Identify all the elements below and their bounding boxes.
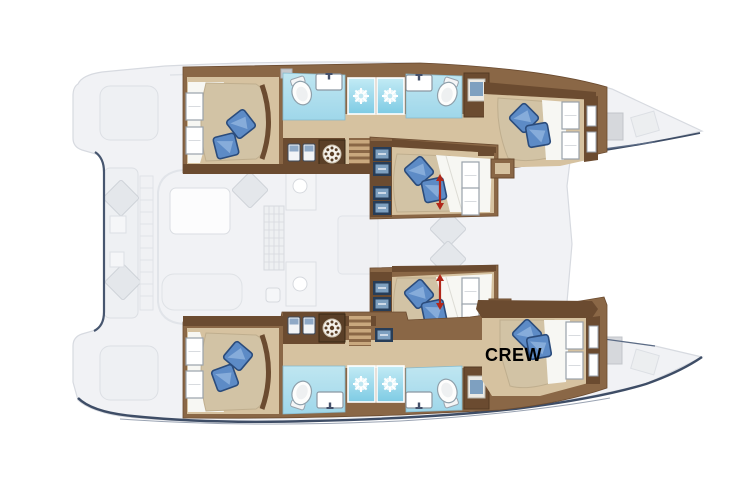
end-wall-panel bbox=[589, 326, 598, 348]
hull-window bbox=[462, 278, 479, 305]
crew-cabin: CREW bbox=[476, 300, 600, 396]
cabin-wall bbox=[392, 265, 496, 272]
catamaran-deck-plan-page: CREW bbox=[0, 0, 744, 496]
port-forward-cabin bbox=[484, 82, 598, 168]
washer-drum-icon bbox=[319, 140, 345, 168]
companionway-stairs-icon bbox=[349, 314, 371, 346]
saloon-sofa bbox=[162, 274, 242, 310]
hull-window bbox=[562, 102, 579, 129]
washer-drum-icon bbox=[319, 314, 345, 342]
blue-pillow-icon bbox=[525, 122, 550, 147]
hull-window bbox=[186, 338, 203, 365]
starboard-aft-head bbox=[283, 366, 345, 414]
galley-stove bbox=[266, 288, 280, 302]
port-aft-head bbox=[283, 73, 345, 120]
hull-window bbox=[566, 352, 583, 379]
aft-cockpit bbox=[103, 168, 153, 318]
sink-basin-icon bbox=[406, 75, 432, 91]
starboard-forward-head bbox=[406, 366, 462, 412]
hull-window bbox=[186, 93, 203, 120]
port-mid-cabin bbox=[370, 137, 514, 219]
inboard-wall bbox=[183, 316, 376, 326]
cockpit-table bbox=[110, 252, 124, 267]
sink-basin-icon bbox=[316, 74, 342, 90]
cabin-wall bbox=[476, 300, 598, 318]
blue-locker-icon bbox=[373, 162, 391, 176]
crew-cabin-label: CREW bbox=[485, 345, 542, 365]
shelf bbox=[478, 147, 494, 156]
blue-locker-icon bbox=[373, 201, 391, 215]
port-aft-cabin bbox=[186, 69, 292, 165]
cockpit-aft-edge bbox=[94, 152, 104, 331]
hull-window bbox=[562, 132, 579, 159]
galley-sink bbox=[293, 277, 307, 291]
deck-hatch-frame bbox=[491, 159, 514, 178]
stern-seat-starboard bbox=[100, 346, 158, 400]
fridge-locker-icon bbox=[303, 317, 315, 334]
end-wall-panel bbox=[589, 354, 598, 376]
blue-locker-icon bbox=[373, 281, 391, 295]
stern-seat-port bbox=[100, 86, 158, 140]
hull-window bbox=[186, 371, 203, 398]
hull-window bbox=[186, 127, 203, 154]
starboard-corridor-floor bbox=[283, 340, 490, 368]
galley-sink bbox=[293, 179, 307, 193]
blue-locker-icon bbox=[375, 328, 393, 342]
blue-locker-icon bbox=[373, 147, 391, 161]
sink-basin-icon bbox=[317, 392, 343, 408]
blue-pillow-icon bbox=[213, 133, 240, 160]
saloon-table bbox=[170, 188, 230, 234]
fridge-locker-icon bbox=[303, 144, 315, 161]
hull-window bbox=[566, 322, 583, 349]
end-wall-panel bbox=[587, 106, 596, 126]
fridge-locker-icon bbox=[288, 144, 300, 161]
port-forward-head bbox=[406, 74, 462, 118]
catamaran-deck-plan: CREW bbox=[0, 0, 744, 496]
inboard-wall bbox=[183, 164, 376, 174]
cockpit-louver-step bbox=[140, 176, 153, 310]
blue-locker-icon bbox=[373, 297, 391, 311]
starboard-aft-cabin bbox=[186, 328, 279, 414]
hull-window bbox=[462, 162, 479, 189]
mast-step bbox=[338, 216, 378, 274]
hull-window bbox=[462, 188, 479, 215]
galley-grate bbox=[264, 206, 284, 270]
fridge-locker-icon bbox=[288, 317, 300, 334]
end-wall-panel bbox=[587, 132, 596, 152]
cockpit-table bbox=[110, 216, 126, 233]
blue-locker-icon bbox=[373, 186, 391, 200]
sink-basin-icon bbox=[406, 392, 432, 408]
